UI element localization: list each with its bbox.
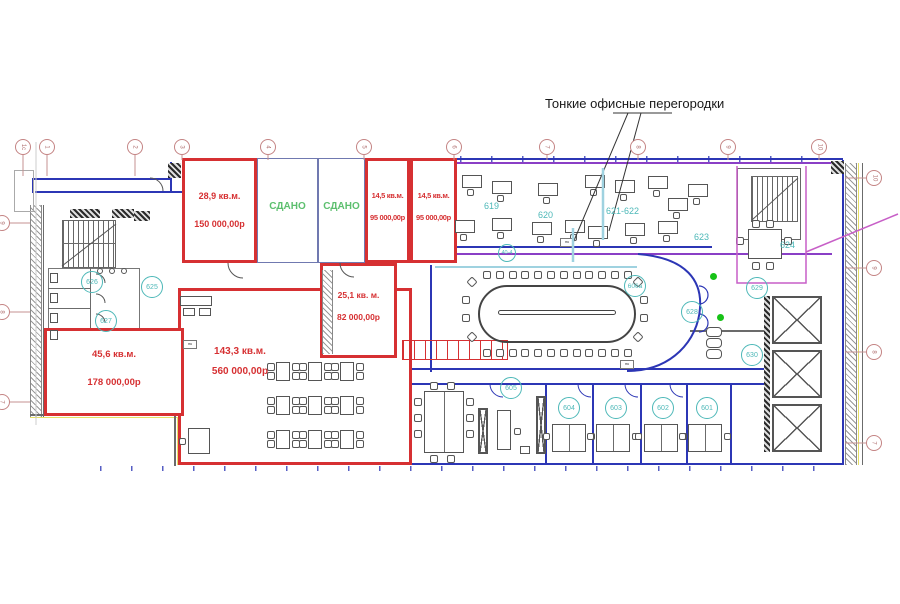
- wall-piece-3: [134, 211, 150, 221]
- floor-plan: 28,9 кв.м. 150 000,00р СДАНО СДАНО 14,5 …: [0, 0, 900, 604]
- chair: [752, 220, 760, 228]
- room-badge-628: 628: [681, 301, 703, 323]
- green-marker-2: [717, 314, 724, 321]
- grid-bubble-top-9: 9: [720, 139, 736, 155]
- chair: [537, 236, 544, 243]
- chair: [496, 349, 504, 357]
- chair: [356, 363, 364, 371]
- office-desk: [648, 176, 668, 189]
- room-number-624: 624: [780, 240, 795, 250]
- chair: [331, 431, 339, 439]
- grid-bubble-top-2: 2: [127, 139, 143, 155]
- cafe-table: [340, 396, 354, 415]
- chair: [466, 414, 474, 422]
- grid-bubble-top-7: 7: [539, 139, 555, 155]
- office-desk: [538, 183, 558, 196]
- room-leased-2: СДАНО: [318, 158, 365, 263]
- cafe-table: [308, 362, 322, 381]
- couch-1: [706, 327, 722, 337]
- shelf-unit-2: [536, 396, 546, 454]
- sink: [121, 268, 127, 274]
- room-badge-603: 603: [605, 397, 627, 419]
- chair: [299, 363, 307, 371]
- chair: [356, 372, 364, 380]
- chair: [497, 232, 504, 239]
- chair: [299, 431, 307, 439]
- chair: [430, 382, 438, 390]
- grid-bubble-top-10: 10: [811, 139, 827, 155]
- chair: [460, 234, 467, 241]
- wall-corner-block: [168, 163, 181, 178]
- office-desk: [668, 198, 688, 211]
- office-desk: [688, 184, 708, 197]
- grid-bubble-left-2: 7: [0, 394, 10, 410]
- office-desk: [532, 222, 552, 235]
- chair: [267, 440, 275, 448]
- chair: [543, 433, 550, 440]
- couch-2: [706, 338, 722, 348]
- chair: [673, 212, 680, 219]
- office-desk: [625, 223, 645, 236]
- wall-div-603: [592, 384, 594, 465]
- chair: [620, 194, 627, 201]
- office-desk: [588, 226, 608, 239]
- grid-bubble-top-5: 5: [356, 139, 372, 155]
- chair: [467, 189, 474, 196]
- wall-topleft-outer: [32, 178, 172, 180]
- room-leased-1: СДАНО: [257, 158, 318, 263]
- chair: [611, 271, 619, 279]
- chair: [356, 397, 364, 405]
- chair: [752, 262, 760, 270]
- chair: [724, 433, 731, 440]
- fire-cabinet-3: пк: [560, 238, 574, 247]
- grid-bubble-right-3: 7: [866, 435, 882, 451]
- chair: [534, 349, 542, 357]
- outer-step-lines: [14, 170, 34, 212]
- chair: [611, 349, 619, 357]
- room-number-620: 620: [538, 210, 553, 220]
- desk-605: [497, 410, 511, 450]
- chair: [766, 220, 774, 228]
- room-leased-1-label: СДАНО: [258, 201, 317, 212]
- room-14-5-a: 14,5 кв.м. 95 000,00р: [365, 158, 410, 263]
- wall-left-exterior: [30, 205, 42, 418]
- room-badge-601: 601: [696, 397, 718, 419]
- chair: [573, 271, 581, 279]
- room-45-6-price: 178 000,00р: [47, 377, 181, 388]
- office-desk: [565, 220, 585, 233]
- chair: [598, 271, 606, 279]
- sink: [109, 268, 115, 274]
- desk-divider: [705, 425, 706, 451]
- grid-bubble-top-1: 1: [39, 139, 55, 155]
- cafe-table: [308, 430, 322, 449]
- chair: [509, 271, 517, 279]
- chair: [632, 331, 643, 342]
- chair: [736, 237, 744, 245]
- elevator-2: [772, 350, 822, 398]
- chair: [331, 363, 339, 371]
- chair: [653, 190, 660, 197]
- room-number-619: 619: [484, 201, 499, 211]
- room-45-6-area: 45,6 кв.м.: [47, 349, 181, 360]
- office-desk: [658, 221, 678, 234]
- chair: [267, 397, 275, 405]
- chair: [356, 406, 364, 414]
- sofa-seat-1: [183, 308, 195, 316]
- grid-bubble-top-6: 6: [446, 139, 462, 155]
- chair: [267, 363, 275, 371]
- wall-piece-2: [112, 209, 134, 218]
- office-desk: [492, 218, 512, 231]
- chair: [663, 235, 670, 242]
- chair: [430, 455, 438, 463]
- room-14-5-b-area: 14,5 кв.м.: [413, 191, 454, 200]
- cart-605: [520, 446, 530, 454]
- chair: [598, 349, 606, 357]
- wall-piece-1: [70, 209, 100, 218]
- cafe-table: [276, 430, 290, 449]
- chair: [483, 349, 491, 357]
- chair: [414, 398, 422, 406]
- room-28-9: 28,9 кв.м. 150 000,00р: [182, 158, 257, 263]
- stair-left: [62, 220, 116, 268]
- wall-top-ticks: [460, 156, 832, 162]
- room-badge-629: 629: [746, 277, 768, 299]
- room-25-1-hatch-wall: [322, 270, 333, 354]
- wall-corridor2-top: [412, 368, 770, 370]
- wall-lobby: [730, 384, 732, 465]
- wall-bl-yellow: [30, 417, 178, 418]
- room-45-6: 45,6 кв.м. 178 000,00р: [44, 328, 184, 416]
- grid-bubble-top-3: 3: [174, 139, 190, 155]
- chair: [267, 372, 275, 380]
- wall-corner-tr: [831, 161, 844, 174]
- chair: [624, 349, 632, 357]
- wall-right-exterior: [845, 163, 857, 465]
- wall-reception-top: [690, 330, 770, 332]
- chair: [560, 271, 568, 279]
- room-leased-2-label: СДАНО: [319, 201, 364, 212]
- elevator-shaft-wall: [764, 296, 770, 452]
- wall-right-outer: [862, 163, 863, 465]
- chair: [462, 296, 470, 304]
- wall-right-yellow: [858, 163, 859, 465]
- grid-bubble-top-4: 4: [260, 139, 276, 155]
- couch-3: [706, 349, 722, 359]
- room-14-5-b: 14,5 кв.м. 95 000,00р: [410, 158, 457, 263]
- table-624: [748, 229, 782, 259]
- grid-bubble-top-0: 1с: [15, 139, 31, 155]
- grid-bubble-top-8: 8: [630, 139, 646, 155]
- office-desk: [462, 175, 482, 188]
- cafe-table: [276, 362, 290, 381]
- chair: [514, 428, 521, 435]
- wall-right-inner: [842, 160, 844, 465]
- room-number-623: 623: [694, 232, 709, 242]
- fire-cabinet-1: пк: [183, 340, 197, 349]
- chair: [299, 397, 307, 405]
- sofa-seat-2: [199, 308, 211, 316]
- green-marker-1: [710, 273, 717, 280]
- wall-bl-vert: [174, 414, 176, 466]
- toilet: [50, 293, 58, 303]
- room-badge-630: 630: [741, 344, 763, 366]
- chair: [466, 398, 474, 406]
- chair: [447, 455, 455, 463]
- cafe-table: [340, 362, 354, 381]
- desk-divider: [613, 425, 614, 451]
- table-605-divider: [444, 392, 445, 452]
- chair: [573, 349, 581, 357]
- room-badge-corridor: 40-4: [498, 244, 516, 262]
- chair: [496, 271, 504, 279]
- room-number-621-622: 621-622: [606, 206, 639, 216]
- grid-bubble-right-1: 9: [866, 260, 882, 276]
- sofa: [180, 296, 212, 306]
- chair: [585, 271, 593, 279]
- chair: [447, 382, 455, 390]
- chair: [483, 271, 491, 279]
- chair: [635, 433, 642, 440]
- room-25-1-area: 25,1 кв. м.: [323, 290, 394, 300]
- desk-divider: [661, 425, 662, 451]
- grid-bubble-left-0: 9: [0, 215, 10, 231]
- chair: [640, 296, 648, 304]
- room-badge-626: 626: [81, 271, 103, 293]
- grid-bubble-right-0: 10: [866, 170, 882, 186]
- shelf-unit-1: [478, 408, 488, 454]
- chair: [547, 271, 555, 279]
- wall-corridor2-bottom: [412, 383, 770, 385]
- chair: [593, 240, 600, 247]
- elevator-1: [772, 296, 822, 344]
- chair: [640, 314, 648, 322]
- chair: [585, 349, 593, 357]
- grid-bubble-left-1: 8: [0, 304, 10, 320]
- wall-offices-bottom: [457, 246, 712, 248]
- desk-divider: [569, 425, 570, 451]
- chair: [534, 271, 542, 279]
- chair: [509, 349, 517, 357]
- chair: [414, 430, 422, 438]
- elevator-3: [772, 404, 822, 452]
- chair: [590, 189, 597, 196]
- chair: [356, 431, 364, 439]
- conference-table-slot: [498, 310, 616, 315]
- chair: [299, 406, 307, 414]
- chair: [560, 349, 568, 357]
- toilet: [50, 330, 58, 340]
- chair: [693, 198, 700, 205]
- wall-div-602: [640, 384, 642, 465]
- chair: [331, 397, 339, 405]
- bar-counter: [402, 340, 508, 360]
- chair: [267, 431, 275, 439]
- chair: [299, 372, 307, 380]
- reception-desk: [188, 428, 210, 454]
- chair: [331, 372, 339, 380]
- room-badge-605: 605: [500, 377, 522, 399]
- office-desk: [492, 181, 512, 194]
- room-badge-604: 604: [558, 397, 580, 419]
- room-25-1-price: 82 000,00р: [323, 312, 394, 322]
- chair: [331, 406, 339, 414]
- chair: [521, 271, 529, 279]
- room-badge-625: 625: [141, 276, 163, 298]
- cafe-table: [308, 396, 322, 415]
- office-desk: [615, 180, 635, 193]
- room-badge-602: 602: [652, 397, 674, 419]
- chair: [587, 433, 594, 440]
- office-desk: [455, 220, 475, 233]
- fire-cabinet-2: пк: [620, 360, 634, 369]
- chair: [179, 438, 186, 445]
- wc-divider-2: [48, 308, 90, 309]
- chair: [766, 262, 774, 270]
- office-desk: [585, 175, 605, 188]
- chair: [331, 440, 339, 448]
- chair: [466, 430, 474, 438]
- chair: [679, 433, 686, 440]
- cafe-table: [340, 430, 354, 449]
- room-badge-606a: 606а: [624, 275, 646, 297]
- chair: [547, 349, 555, 357]
- chair: [521, 349, 529, 357]
- glass-conf-top: [435, 266, 637, 268]
- grid-bubble-right-2: 8: [866, 344, 882, 360]
- stair-left-landing: [62, 243, 116, 244]
- room-14-5-a-area: 14,5 кв.м.: [368, 191, 407, 200]
- chair: [630, 237, 637, 244]
- annotation-label: Тонкие офисные перегородки: [545, 96, 724, 111]
- wall-bottom-ticks: [100, 466, 844, 471]
- chair: [299, 440, 307, 448]
- cafe-table: [276, 396, 290, 415]
- chair: [267, 406, 275, 414]
- wall-bottom: [412, 463, 844, 465]
- room-14-5-a-price: 95 000,00р: [368, 213, 407, 222]
- chair: [543, 197, 550, 204]
- room-28-9-area: 28,9 кв.м.: [185, 191, 254, 201]
- toilet: [50, 273, 58, 283]
- stair-right: [751, 176, 798, 222]
- chair: [466, 276, 477, 287]
- chair: [462, 314, 470, 322]
- room-badge-627: 627: [95, 310, 117, 332]
- chair: [356, 440, 364, 448]
- wall-topleft-inner: [35, 191, 182, 193]
- chair: [414, 414, 422, 422]
- room-14-5-b-price: 95 000,00р: [413, 213, 454, 222]
- toilet: [50, 313, 58, 323]
- room-28-9-price: 150 000,00р: [185, 219, 254, 229]
